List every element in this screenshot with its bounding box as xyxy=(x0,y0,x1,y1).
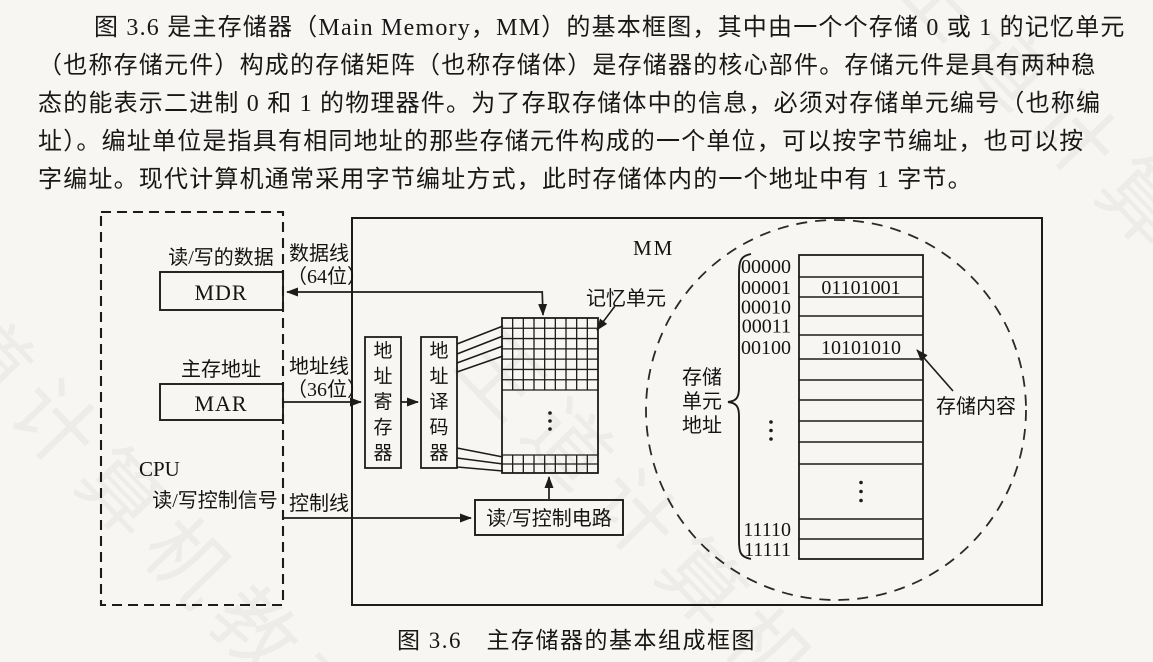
memory-cell-callout-label: 记忆单元 xyxy=(586,287,666,310)
decoder-select-lines xyxy=(457,326,503,471)
memory-cell-matrix xyxy=(502,318,598,473)
memory-address-label: 00011 xyxy=(742,316,791,338)
vertical-ellipsis-icon xyxy=(769,420,773,441)
matrix-grid-lines xyxy=(502,318,598,473)
figure-caption: 图 3.6 主存储器的基本组成框图 xyxy=(0,621,1153,655)
address-bus-width: （36位） xyxy=(287,378,367,401)
mar-box-label: MAR xyxy=(194,391,247,416)
mar-caption: 主存地址 xyxy=(181,358,261,381)
address-bus-label: 地址线 xyxy=(289,355,349,378)
control-bus-label: 控制线 xyxy=(289,492,349,515)
cpu-label: CPU xyxy=(139,457,180,481)
data-bus-label: 数据线 xyxy=(289,242,349,265)
vertical-ellipsis-icon xyxy=(859,481,863,503)
mdr-caption: 读/写的数据 xyxy=(168,246,274,269)
address-register-label: 地址寄存器 xyxy=(373,340,392,464)
data-bus-width: （64位） xyxy=(287,265,367,288)
address-decoder-label: 地址译码器 xyxy=(429,340,448,464)
memory-content-value: 10101010 xyxy=(821,337,901,359)
memory-address-label: 11110 xyxy=(743,519,791,541)
bus-lines xyxy=(284,291,549,518)
storage-address-label-line: 单元 xyxy=(682,390,722,413)
vertical-ellipsis-icon xyxy=(548,411,552,431)
memory-content-value: 01101001 xyxy=(821,277,900,299)
data-line-into-matrix xyxy=(542,291,543,315)
rw-signal-label: 读/写控制信号 xyxy=(152,489,278,512)
memory-table: 0000000001011010010001000011001001010101… xyxy=(741,255,923,561)
storage-address-label-line: 地址 xyxy=(682,414,722,437)
matrix-outline xyxy=(502,318,598,473)
rw-control-circuit-label: 读/写控制电路 xyxy=(486,507,612,530)
mm-label: MM xyxy=(633,236,674,260)
memory-table-outline xyxy=(799,255,923,559)
memory-address-label: 00100 xyxy=(741,337,791,359)
figure-3-6-diagram: 读/写的数据 MDR 主存地址 MAR CPU 读/写控制信号 数据线 （64位… xyxy=(0,0,1153,662)
mdr-box-label: MDR xyxy=(194,280,247,305)
storage-content-label: 存储内容 xyxy=(936,395,1016,418)
textbook-page: 王道计算机教育 王道计算机教育 王道计算机教育 图 3.6 是主存储器（Main… xyxy=(0,0,1153,662)
memory-address-label: 00000 xyxy=(741,256,791,278)
memory-address-label: 11111 xyxy=(744,539,791,561)
cpu-dashed-box xyxy=(101,212,283,605)
storage-address-label-line: 存储 xyxy=(682,366,722,389)
